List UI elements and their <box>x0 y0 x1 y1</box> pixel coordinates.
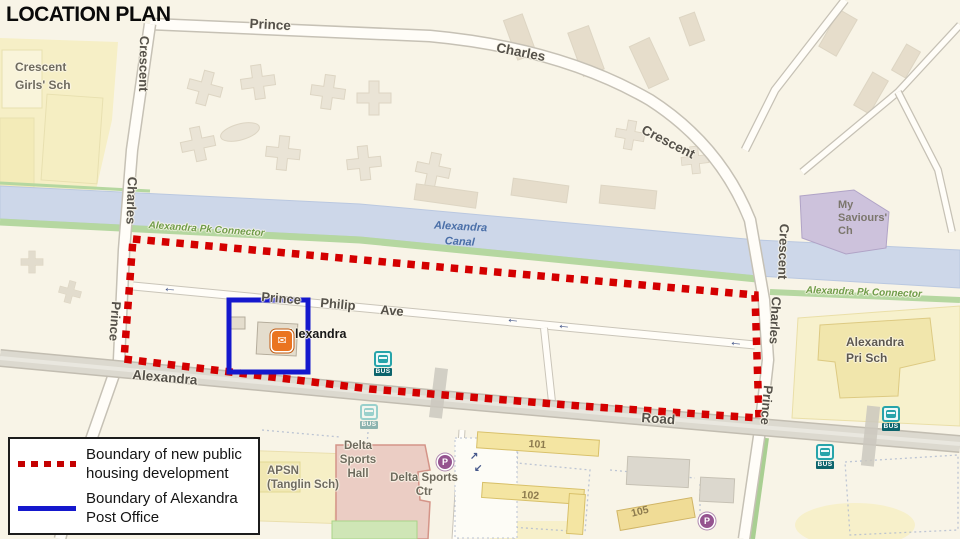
post-office-icon: ✉ <box>272 331 292 351</box>
blue-solid-line-swatch <box>18 506 76 511</box>
bus-stop-label: BUS <box>374 368 392 376</box>
location-plan-map: LOCATION PLAN Crescent Girls' Sch Prince… <box>0 0 960 539</box>
bus-glyph-icon <box>882 406 900 422</box>
road-label-crescent-right: Crescent <box>774 223 792 279</box>
road-label-ppa-philip: Philip <box>320 295 357 314</box>
label-block-102: 102 <box>521 489 539 503</box>
parking-icon: P <box>700 514 714 528</box>
arrow-left-icon: ← <box>163 280 178 295</box>
road-label-crescent-left: Crescent <box>135 36 152 92</box>
bus-glyph-icon <box>816 444 834 460</box>
label-delta-sports-ctr: Delta Sports Ctr <box>386 472 462 500</box>
bus-glyph-icon <box>374 351 392 367</box>
legend: Boundary of new public housing developme… <box>8 437 260 535</box>
bus-stop-icon: BUS <box>360 404 378 429</box>
label-alexandra-canal: Alexandra Canal <box>422 218 497 252</box>
road-label-prince-right: Prince <box>756 385 776 426</box>
road-label-prince-left: Prince <box>105 301 124 342</box>
label-block-101: 101 <box>528 438 546 452</box>
label-delta-sports-hall: Delta Sports Hall <box>330 440 386 481</box>
red-dotted-line-swatch <box>18 461 76 467</box>
bus-stop-icon: BUS <box>816 444 834 469</box>
label-post-office: Alexandra <box>286 327 346 343</box>
label-crescent-girls-sch: Crescent Girls' Sch <box>15 58 71 94</box>
bus-stop-label: BUS <box>816 461 834 469</box>
arrow-northeast-icon: ↗ <box>470 452 478 462</box>
road-label-road: Road <box>641 410 676 429</box>
road-label-prince-top: Prince <box>249 16 291 35</box>
legend-item-post-office-boundary: Boundary of Alexandra Post Office <box>18 489 250 527</box>
road-label-charles-left: Charles <box>122 176 140 224</box>
arrow-left-icon: ← <box>505 310 520 325</box>
bus-glyph-icon <box>360 404 378 420</box>
label-my-saviours-ch: My Saviours' Ch <box>838 199 887 239</box>
bus-stop-icon: BUS <box>882 406 900 431</box>
page-title: LOCATION PLAN <box>6 2 171 28</box>
road-label-charles-right: Charles <box>765 296 784 344</box>
legend-item-housing-boundary: Boundary of new public housing developme… <box>18 445 250 483</box>
legend-label: Boundary of new public housing developme… <box>86 445 242 483</box>
arrow-southwest-icon: ↙ <box>474 464 482 474</box>
bus-stop-label: BUS <box>882 423 900 431</box>
arrow-left-icon: ← <box>728 333 743 348</box>
arrow-left-icon: ← <box>556 316 571 331</box>
legend-label: Boundary of Alexandra Post Office <box>86 489 238 527</box>
parking-icon: P <box>438 455 452 469</box>
label-alexandra-pri-sch: Alexandra Pri Sch <box>846 334 904 366</box>
road-label-ppa-prince: Prince <box>261 289 302 309</box>
bus-stop-icon: BUS <box>374 351 392 376</box>
road-label-ppa-ave: Ave <box>380 302 405 320</box>
bus-stop-label: BUS <box>360 421 378 429</box>
label-apsn: APSN (Tanglin Sch) <box>267 464 339 493</box>
